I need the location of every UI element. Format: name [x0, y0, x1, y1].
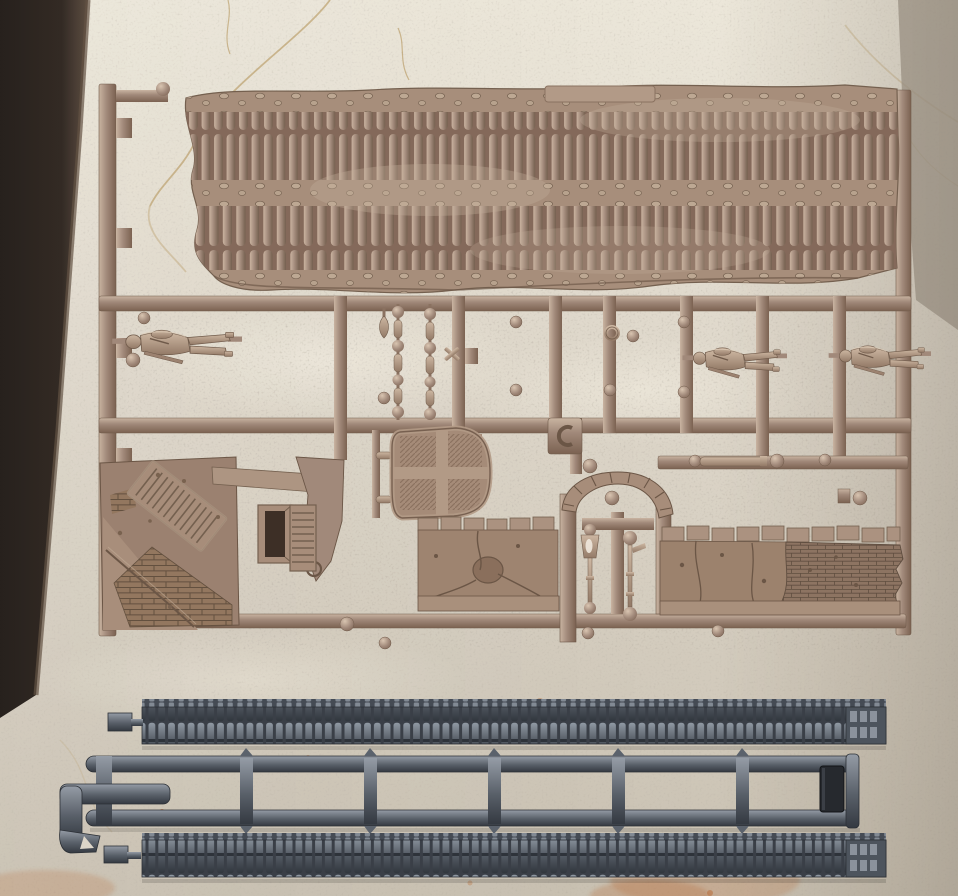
- coping-stones: [662, 526, 900, 542]
- track-end-connector: [846, 840, 886, 877]
- c-clamp-part: [548, 418, 582, 454]
- track-end-connector: [846, 707, 886, 744]
- door-frame-part: [258, 505, 292, 563]
- lower-track-length: [104, 833, 886, 877]
- damaged-brick-wall-section: [660, 526, 903, 615]
- scene-canvas: [0, 0, 958, 896]
- track-left-tab: [108, 713, 132, 731]
- cracked-wall-section: [418, 517, 559, 611]
- track-left-tab: [104, 846, 128, 863]
- panel-raised-tab: [545, 86, 655, 102]
- textured-ground-panel: [183, 85, 899, 294]
- photo-model-kit-sprues: [0, 0, 958, 896]
- sprue-gate-ball: [156, 82, 170, 96]
- round-hatch: [390, 428, 490, 518]
- crater-hole: [473, 557, 503, 583]
- upper-track-length: [108, 699, 886, 744]
- exposed-bricks: [780, 542, 903, 607]
- louvered-shutter-part: [290, 505, 316, 571]
